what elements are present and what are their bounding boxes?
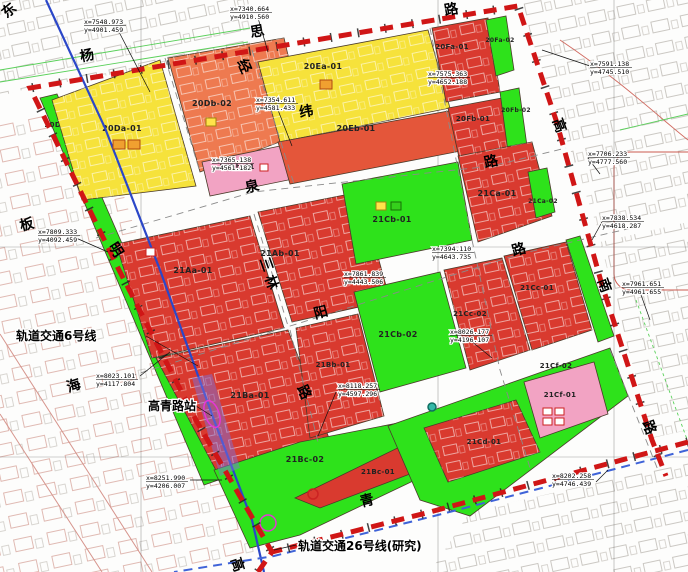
parcel-label-20Fb-01: 20Fb-01 [456,115,490,123]
coord-label-y: y=4206.007 [146,482,185,490]
plan-symbol-icon [391,202,401,210]
plan-symbol-icon [113,140,125,149]
parcel-label-21Bc-02: 21Bc-02 [286,455,325,464]
coord-label-y: y=4581.433 [256,104,295,112]
parcel-label-20Fa-02: 20Fa-02 [485,37,514,44]
parcel-label-21Cf-02: 21Cf-02 [540,362,573,370]
coord-label-y: y=4597.296 [338,390,377,398]
plan-symbol-icon [543,408,552,415]
plan-symbol-icon [376,202,386,210]
parcel-label-21Ca-02: 21Ca-02 [528,198,558,205]
coord-label-y: y=4910.560 [230,13,269,21]
parcel-label-20Fa-01: 20Fa-01 [435,43,469,51]
coord-label-x: x=7340.664 [230,5,269,13]
coord-label-x: x=7591.138 [590,60,629,68]
coord-label-x: x=7838.534 [602,214,641,222]
planning-map-stage: 20Da-0220Da-0120Db-0220Db-0120Ea-0120Eb-… [0,0,688,572]
parcel-label-20Ea-01: 20Ea-01 [304,62,343,71]
coord-label-x: x=7861.839 [344,270,383,278]
coord-label-y: y=4196.107 [450,336,489,344]
coord-label-x: x=8202.258 [552,472,591,480]
plan-symbol-icon [555,408,564,415]
parcel-label-21Cf-01: 21Cf-01 [544,391,577,399]
coord-label-x: x=8251.990 [146,474,185,482]
parcel-label-21Aa-01: 21Aa-01 [173,266,212,275]
coord-label-x: x=8026.177 [450,328,489,336]
coord-label-y: y=4746.439 [552,480,591,488]
coord-label-y: y=4777.560 [588,158,627,166]
coord-label-y: y=4561.182 [212,164,251,172]
plan-symbol-icon [260,164,268,171]
coord-label-y: y=4745.510 [590,68,629,76]
coord-label-x: x=8118.257 [338,382,377,390]
road-name-char: 路 [443,0,461,19]
parcel-label-21Cd-01: 21Cd-01 [467,438,502,446]
parcel-label-20Db-02: 20Db-02 [192,99,232,108]
plan-symbol-icon [428,403,436,411]
parcel-label-21Ca-01: 21Ca-01 [478,189,517,198]
parcel-label-21Cc-01: 21Cc-01 [520,284,554,292]
planning-map: 20Da-0220Da-0120Db-0220Db-0120Ea-0120Eb-… [0,0,688,572]
plan-symbol-icon [128,140,140,149]
coord-label-x: x=7548.973 [84,18,123,26]
plan-symbol-icon [206,118,216,126]
parcel-label-20Fb-02: 20Fb-02 [501,107,531,114]
plan-symbol-icon [320,80,332,89]
coord-label-y: y=4901.459 [84,26,123,34]
coord-label-x: x=7809.333 [38,228,77,236]
coord-label-x: x=8023.101 [96,372,135,380]
annotation-text: 轨道交通6号线 [16,328,96,343]
parcel-label-21Ba-01: 21Ba-01 [230,391,269,400]
parcel-label-21Cc-02: 21Cc-02 [453,310,487,318]
coord-label-x: x=7961.651 [622,280,661,288]
parcel-label-21Cb-01: 21Cb-01 [372,215,411,224]
coord-label-y: y=4443.506 [344,278,383,286]
plan-symbol-icon [146,248,155,256]
parcel-label-20Eb-01: 20Eb-01 [337,124,376,133]
coord-label-y: y=4117.804 [96,380,135,388]
coord-label-x: x=7575.363 [428,70,467,78]
road-name-char: 纬 [298,102,315,121]
coord-leader-line [596,470,608,482]
annotation-text: 高青路站 [148,398,196,413]
parcel-label-21Bc-01: 21Bc-01 [361,468,395,476]
road-name-char: 思 [249,23,266,41]
coord-label-y: y=4092.459 [38,236,77,244]
plan-symbol-icon [543,418,552,425]
plan-symbol-icon [555,418,564,425]
parcel-label-21Bb-01: 21Bb-01 [316,361,351,369]
coord-label-y: y=4643.735 [432,253,471,261]
annotation-text: 轨道交通26号线(研究) [298,538,422,553]
coord-label-y: y=4652.188 [428,78,467,86]
coord-label-x: x=7706.233 [588,150,627,158]
coord-label-x: x=7354.611 [256,96,295,104]
coord-label-x: x=7394.110 [432,245,471,253]
coord-label-y: y=4961.655 [622,288,661,296]
coord-label-x: x=7365.138 [212,156,251,164]
coord-label-y: y=4618.287 [602,222,641,230]
parcel-label-20Da-01: 20Da-01 [102,124,142,133]
parcel-label-21Cb-02: 21Cb-02 [378,330,417,339]
